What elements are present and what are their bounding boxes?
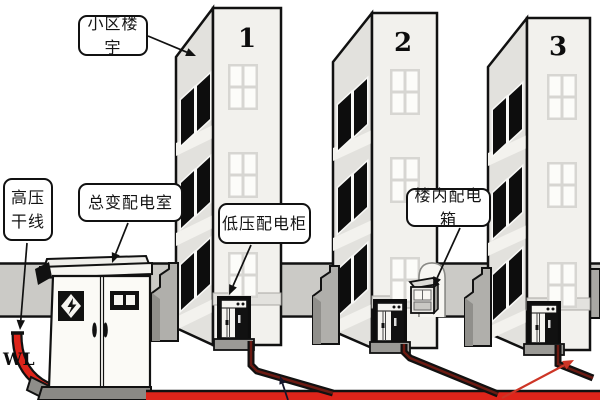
building-3-side-window-1-1: [493, 98, 506, 155]
building-3-side-window-3-1: [493, 263, 506, 320]
building-3-front-window-3-pane: [564, 287, 575, 306]
building-2-side-window-1-1: [338, 93, 351, 150]
arrow-main-transformer-room-shaft: [116, 223, 128, 254]
building-3-front-window-3-pane: [564, 265, 575, 284]
building-1-drop-cable-core: [251, 341, 333, 393]
building-2-front-window-2-pane: [393, 160, 404, 179]
building-1-side-window-1-2: [197, 74, 210, 131]
building-1-lv-cabinet-dot-1: [237, 303, 240, 306]
building-3-front-window-1-pane: [550, 99, 561, 118]
building-1-front-window-1-pane: [245, 89, 256, 108]
meter-window-2: [126, 295, 135, 305]
callout-main-transformer-room: 总变配电室: [78, 183, 183, 222]
building-1-lv-cabinet-tick: [238, 315, 241, 323]
building-2-side-window-2-2: [354, 162, 367, 219]
building-1-entrance-steps-shade: [152, 293, 160, 341]
building-3-side-window-1-2: [509, 84, 522, 141]
building-3-number: 3: [528, 32, 588, 62]
building-3-side-window-2-1: [493, 181, 506, 238]
callout-community-building-text: 小区楼宇: [80, 12, 146, 58]
building-1-side-window-1-1: [181, 88, 194, 145]
building-3-lv-cabinet-handle: [536, 325, 539, 330]
arrow-community-building-shaft: [148, 36, 187, 52]
building-3-lv-cabinet-tick: [548, 320, 551, 328]
building-1-lv-cabinet-handle: [226, 320, 229, 325]
building-2-lv-cabinet-dot-1: [393, 306, 396, 309]
callout-lv-distribution-cabinet-text: 低压配电柜: [222, 212, 307, 235]
building-1-number: 1: [217, 24, 277, 54]
wall-band-right-tab: [590, 269, 600, 318]
lv-trunk-cable: [146, 392, 600, 400]
building-2-side-window-2-1: [338, 176, 351, 233]
building-2-front-window-3-pane: [407, 260, 418, 279]
callout-hv-trunk: 高压 干线: [3, 178, 53, 241]
callout-indoor-distribution-box-text: 楼内配电箱: [408, 184, 489, 230]
building-1-front-window-1-pane: [231, 67, 242, 86]
building-3-lv-cabinet-dark-bay: [545, 313, 557, 343]
building-3-side-window-3-2: [509, 249, 522, 306]
power-distribution-diagram: 小区楼宇 高压 干线 总变配电室 低压配电柜 楼内配电箱 1 2 3 WL: [0, 0, 600, 400]
transformer-handle-right: [103, 323, 108, 338]
wl-wire-label: WL: [3, 350, 35, 370]
building-1-drop-cable-outline: [251, 341, 333, 393]
building-3-front-window-1-pane: [564, 77, 575, 96]
building-1-front-window-1-pane: [231, 89, 242, 108]
building-1-side-window-2-2: [197, 157, 210, 214]
building-3-front-window-3-pane: [550, 265, 561, 284]
building-3-entrance-steps-shade: [465, 298, 473, 346]
building-2-entrance-steps-shade: [313, 296, 321, 344]
building-1-front-window-3-pane: [245, 277, 256, 296]
building-3-front-window-2-pane: [564, 165, 575, 184]
building-1-side-window-3-1: [181, 253, 194, 310]
building-2-side-window-3-2: [354, 244, 367, 301]
arrow-hv-trunk-head: [17, 320, 25, 330]
building-3-front-window-2-pane: [564, 187, 575, 206]
building-2-lv-cabinet-tick: [394, 318, 397, 326]
building-2-lv-cabinet-dot-2: [398, 306, 401, 309]
building-2-number: 2: [373, 28, 433, 58]
building-3-lv-cabinet-dot-1: [547, 308, 550, 311]
building-2-front-window-2-pane: [393, 182, 404, 201]
transformer-handle-left: [92, 323, 97, 338]
indoor-box-panel-bottom: [414, 302, 431, 310]
building-2-front-window-2-pane: [407, 160, 418, 179]
callout-hv-trunk-line1: 高压: [11, 186, 45, 209]
building-2-lv-cabinet-handle: [382, 323, 385, 328]
building-3-front-window-1-pane: [550, 77, 561, 96]
transformer-plinth: [38, 387, 151, 400]
building-1-front-window-2-pane: [245, 155, 256, 174]
building-3-front-window-2-pane: [550, 165, 561, 184]
building-1-front-window-1-pane: [245, 67, 256, 86]
building-3-front-window-2-pane: [550, 187, 561, 206]
building-1-front-window-2-pane: [245, 177, 256, 196]
callout-main-transformer-room-text: 总变配电室: [88, 191, 173, 214]
callout-indoor-distribution-box: 楼内配电箱: [406, 188, 491, 227]
building-1-lv-cabinet-dark-bay: [235, 308, 247, 338]
building-3-side-window-2-2: [509, 167, 522, 224]
callout-community-building: 小区楼宇: [78, 15, 148, 56]
building-1-side-window-3-2: [197, 239, 210, 296]
building-2-front-window-1-pane: [407, 94, 418, 113]
building-1-front-window-2-pane: [231, 155, 242, 174]
building-2-side-window-1-2: [354, 79, 367, 136]
building-1-lv-cabinet-dot-2: [242, 303, 245, 306]
building-2-lv-cabinet-dark-bay: [391, 311, 403, 341]
building-1-front-window-2-pane: [231, 177, 242, 196]
callout-lv-distribution-cabinet: 低压配电柜: [218, 203, 311, 244]
building-3-front-window-1-pane: [564, 99, 575, 118]
building-2-front-window-1-pane: [407, 72, 418, 91]
building-2-front-window-1-pane: [393, 94, 404, 113]
building-2-front-window-1-pane: [393, 72, 404, 91]
callout-hv-trunk-line2: 干线: [11, 210, 45, 233]
building-2-front-window-3-pane: [393, 260, 404, 279]
building-2-drop-cable-outline: [404, 344, 498, 394]
meter-window-1: [114, 295, 123, 305]
building-3-lv-cabinet-dot-2: [552, 308, 555, 311]
building-2-front-window-3-pane: [393, 282, 404, 301]
